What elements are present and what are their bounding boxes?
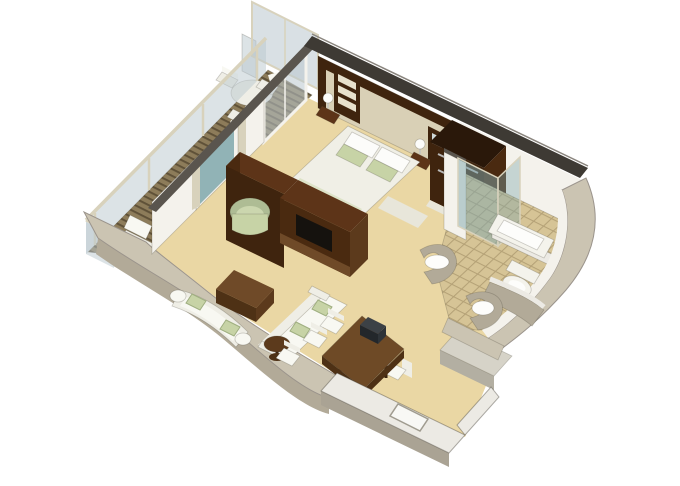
- sink-basin: [425, 255, 449, 269]
- sage-armchair: [230, 198, 270, 235]
- sink-basin: [472, 301, 494, 315]
- sofa-armrest: [235, 333, 251, 345]
- sofa-armrest: [170, 290, 186, 302]
- bedside-lamp: [323, 93, 333, 103]
- floorplan-canvas: [0, 0, 680, 486]
- headboard-left-trim: [318, 56, 326, 112]
- armchair-front: [232, 214, 268, 235]
- bedside-lamp: [415, 139, 425, 149]
- suite-floorplan: [0, 0, 680, 486]
